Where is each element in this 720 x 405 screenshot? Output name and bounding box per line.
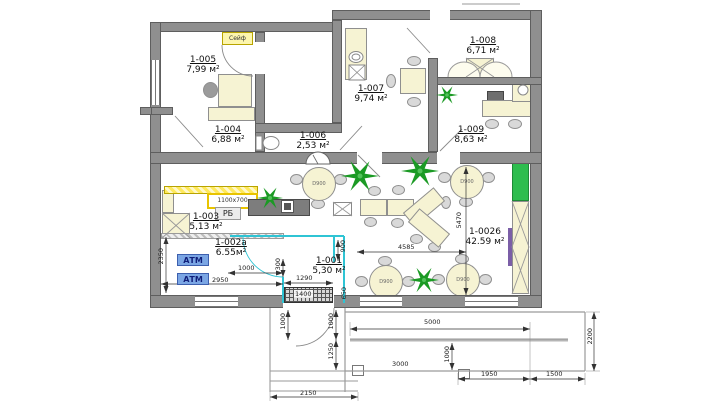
dim-1500: 1500 xyxy=(546,370,563,378)
dim-2950: 2950 xyxy=(212,276,229,284)
room-label-1-005: 1-005 7,99 м² xyxy=(170,55,236,76)
dim-1000-atm: 1000 xyxy=(238,264,255,272)
dim-1400: 1400 xyxy=(294,290,313,298)
room-area: 7,99 м² xyxy=(186,65,219,75)
room-area: 9,74 м² xyxy=(354,94,387,104)
dim-1250: 1250 xyxy=(327,343,335,360)
dim-300: 300 xyxy=(274,258,282,270)
room-id: 1-002а xyxy=(198,238,264,248)
atm-unit-2: АТМ xyxy=(177,273,209,285)
room-area: 5,13 м² xyxy=(189,222,222,232)
room-label-1-004: 1-004 6,88 м² xyxy=(195,125,261,146)
dim-2350: 2350 xyxy=(157,248,165,265)
dim-1000-step-left: 1000 xyxy=(279,313,287,330)
room-area: 6,71 м² xyxy=(466,46,499,56)
dim-1000-step-right: 1000 xyxy=(327,313,335,330)
room-area: 6,88 м² xyxy=(211,135,244,145)
dim-5000: 5000 xyxy=(424,318,441,326)
dim-5470: 5470 xyxy=(455,212,463,229)
room-label-1-003: 1-003 5,13 м² xyxy=(173,212,239,233)
room-id: 1-005 xyxy=(170,55,236,65)
dim-1950: 1950 xyxy=(481,370,498,378)
atm-label: АТМ xyxy=(183,275,203,284)
dim-2150: 2150 xyxy=(300,389,317,397)
meter-icon xyxy=(306,152,330,164)
room-id: 1-007 xyxy=(338,84,404,94)
sink-icon xyxy=(349,52,365,81)
room-area: 5,30 м² xyxy=(312,266,345,276)
room-label-1-006: 1-006 2,53 м² xyxy=(280,131,346,152)
room-label-1-009: 1-009 8,63 м² xyxy=(438,125,504,146)
dim-1290: 1290 xyxy=(296,274,313,282)
dim-900: 900 xyxy=(339,240,347,252)
room-area: 6.55м² xyxy=(216,248,246,258)
room-label-1-002a: 1-002а 6.55м² xyxy=(198,238,264,259)
room-label-1-0026: 1-0026 42.59 м² xyxy=(452,227,518,248)
reception-arcs xyxy=(448,62,512,77)
room-id: 1-0026 xyxy=(452,227,518,237)
dim-650: 650 xyxy=(340,287,348,299)
floor-plan: Сейф 1100x700 РБ АТМ АТМ D900 D900 D900 … xyxy=(0,0,720,405)
room-id: 1-006 xyxy=(280,131,346,141)
room-area: 8,63 м² xyxy=(454,135,487,145)
plan-linework xyxy=(0,0,720,405)
room-id: 1-003 xyxy=(173,212,239,222)
room-id: 1-008 xyxy=(450,36,516,46)
room-id: 1-004 xyxy=(195,125,261,135)
dim-2200: 2200 xyxy=(586,328,594,345)
room-area: 2,53 м² xyxy=(296,141,329,151)
lamp-icon xyxy=(518,85,528,95)
porch-outline xyxy=(345,308,585,392)
room-id: 1-001 xyxy=(296,256,362,266)
room-area: 42.59 м² xyxy=(465,237,504,247)
dim-3000: 3000 xyxy=(392,360,409,368)
dim-1000-porch: 1000 xyxy=(443,346,451,363)
room-label-1-008: 1-008 6,71 м² xyxy=(450,36,516,57)
room-id: 1-009 xyxy=(438,125,504,135)
room-label-1-007: 1-007 9,74 м² xyxy=(338,84,404,105)
dim-4585: 4585 xyxy=(398,243,415,251)
